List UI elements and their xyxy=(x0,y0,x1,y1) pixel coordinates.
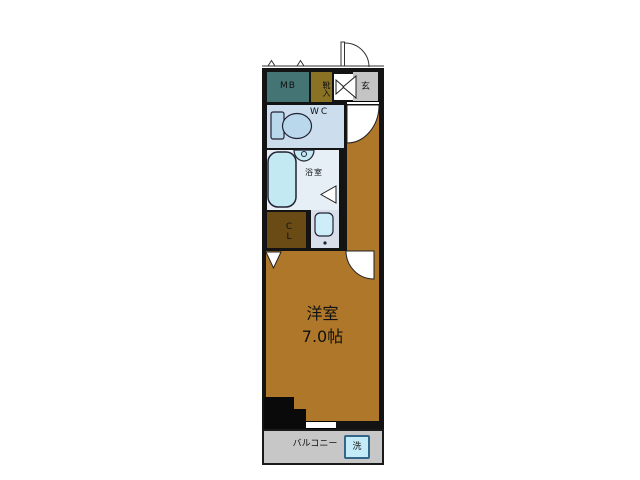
main-room-size: 7.0帖 xyxy=(266,325,379,348)
bath-door-triangle-icon xyxy=(321,186,336,203)
hallway-door-swing-icon xyxy=(347,105,379,143)
main-room-name: 洋室 xyxy=(266,302,379,325)
main-room-label: 洋室 7.0帖 xyxy=(266,302,379,348)
toilet-bowl-icon xyxy=(283,114,312,139)
closet-label: CL xyxy=(281,216,293,248)
bathroom-label: 浴室 xyxy=(299,169,329,177)
entrance-door-swing-icon xyxy=(345,43,369,67)
entrance-label: 玄 xyxy=(353,83,378,92)
washbasin-icon xyxy=(315,213,333,236)
meter-box-label: MB xyxy=(267,82,309,91)
shoe-storage-label: 靴入 xyxy=(313,75,330,103)
main-door-swing-icon xyxy=(346,251,374,279)
closet-door-triangle-icon xyxy=(266,252,281,268)
entrance-door-leaf-icon xyxy=(341,42,345,66)
wc-label: WC xyxy=(310,108,340,117)
plan-symbols xyxy=(0,0,640,480)
bathtub-icon xyxy=(268,152,296,207)
floor-plan: 洗 MB 靴入 玄 WC 浴室 CL 洋室 7.0帖 バルコニー xyxy=(0,0,640,480)
vent-triangle-icon xyxy=(297,61,304,67)
washbasin-drain-icon xyxy=(323,241,326,244)
pillar xyxy=(264,397,306,429)
vent-triangle-icon xyxy=(268,61,275,67)
balcony-label: バルコニー xyxy=(272,440,358,449)
